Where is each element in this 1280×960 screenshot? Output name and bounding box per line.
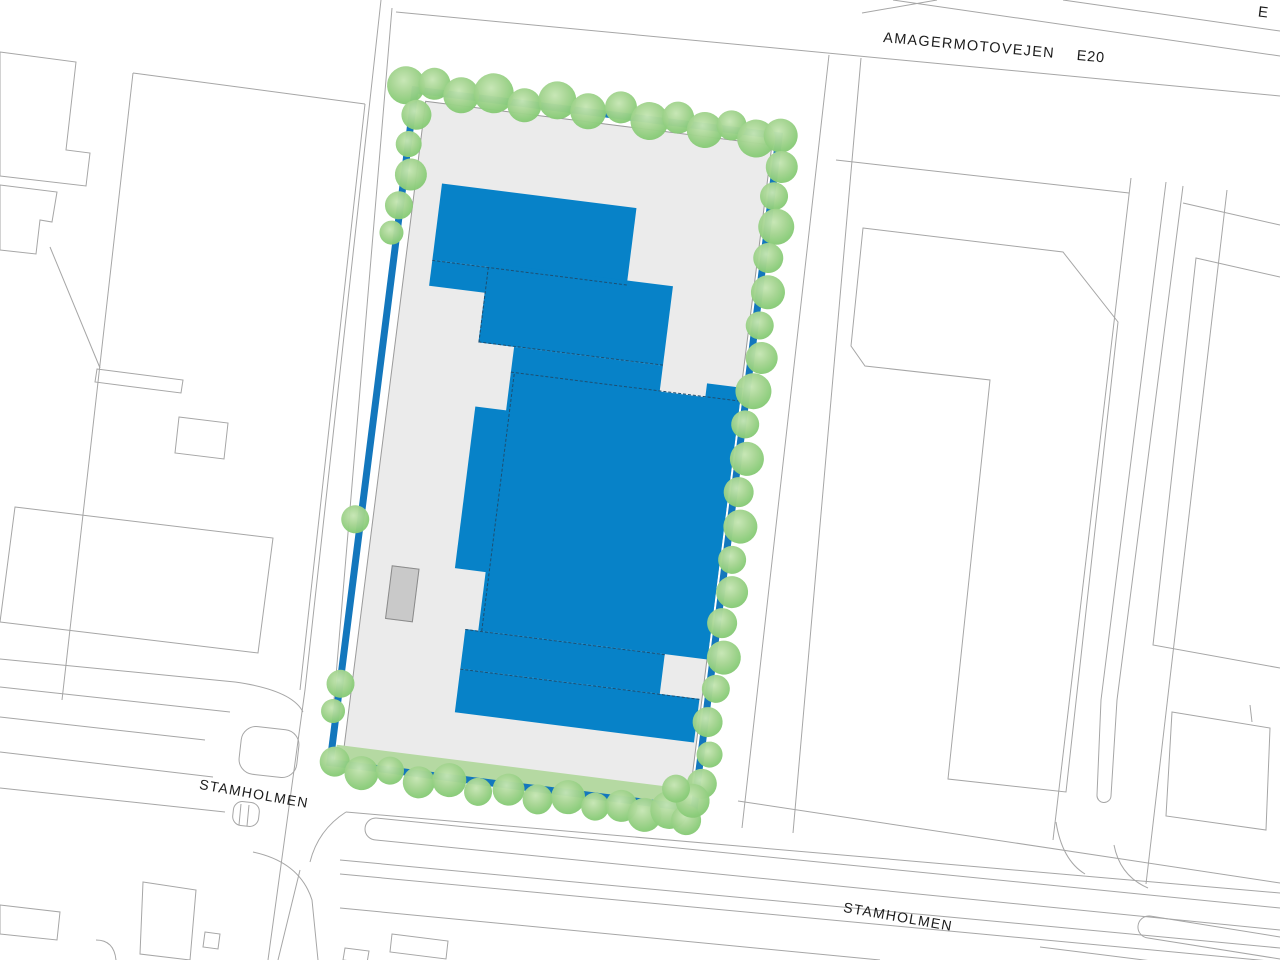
east-parcels	[742, 55, 1280, 884]
left-parcels	[0, 52, 365, 700]
road-number: E20	[1076, 48, 1106, 67]
bottom-parcels	[0, 882, 448, 960]
site-plan-map: AMAGERMOTOVEJENE20 E STAMHOLMEN STAMHOLM…	[0, 0, 1280, 960]
south-street-lines	[340, 801, 1280, 960]
road-label-edge-partial: E	[1257, 3, 1269, 21]
southwest-street-lines	[0, 659, 346, 960]
motorway-lines	[396, 0, 1280, 96]
